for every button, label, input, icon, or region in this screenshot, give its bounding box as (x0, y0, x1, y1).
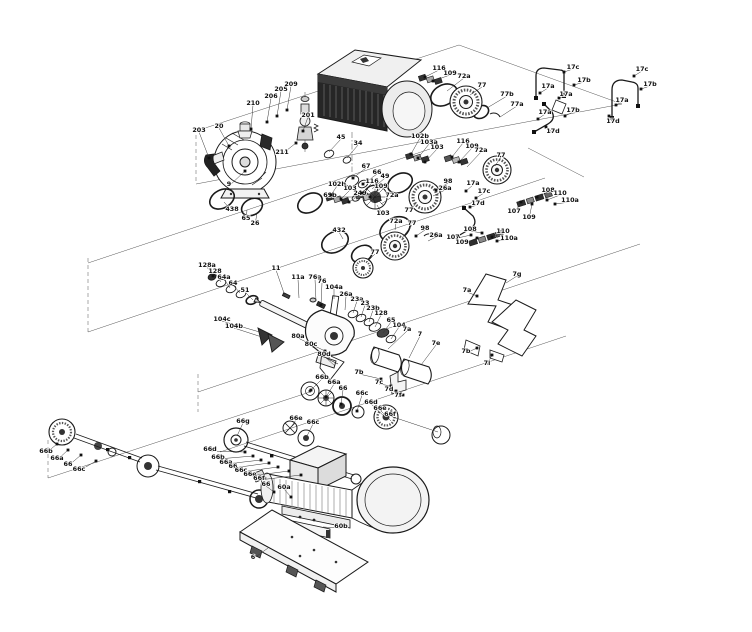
part-label-72a: 72a (457, 72, 470, 80)
part-label-108: 108 (463, 225, 477, 233)
screw-dot (352, 177, 355, 180)
part-label-109: 109 (443, 69, 457, 77)
screw-dot (340, 198, 343, 201)
part-label-45: 45 (337, 133, 346, 141)
screw-dot (573, 84, 576, 87)
part-label-66g: 66g (236, 417, 250, 425)
part-label-17a: 17a (466, 179, 479, 187)
part-label-49: 49 (381, 172, 390, 180)
screw-dot (250, 128, 253, 131)
screw-dot (563, 71, 566, 74)
screw-dot (212, 275, 215, 278)
part-label-7f: 7f (394, 391, 401, 399)
part-label-104b: 104b (225, 322, 243, 330)
screw-dot (330, 194, 333, 197)
screw-dot (310, 389, 313, 392)
part-label-17a: 17a (541, 82, 554, 90)
screw-dot (410, 153, 413, 156)
part-label-66: 66 (339, 384, 348, 392)
part-label-66d: 66d (203, 445, 217, 453)
part-label-17c: 17c (567, 63, 580, 71)
screw-dot (95, 460, 98, 463)
leader-line (411, 138, 420, 154)
part-label-26a: 26a (438, 184, 451, 192)
part-label-66: 66 (262, 480, 271, 488)
part-label-7c: 7c (375, 378, 383, 386)
part-label-17a: 17a (615, 96, 628, 104)
part-labels-layer: 2032021020620520920121194386526453467664… (39, 63, 657, 561)
part-label-77: 77 (478, 81, 487, 89)
leader-line (199, 132, 209, 158)
screw-dot (300, 474, 303, 477)
screw-dot (458, 161, 461, 164)
screw-dot (424, 161, 427, 164)
part-label-66c: 66c (356, 389, 369, 397)
part-label-103: 103 (376, 209, 389, 217)
screw-dot (252, 455, 255, 458)
leader-line (315, 279, 316, 301)
part-label-20: 20 (215, 122, 224, 130)
part-label-77b: 77b (500, 90, 514, 98)
screw-dot (320, 304, 323, 307)
part-label-72a: 72a (474, 146, 487, 154)
part-label-17a: 17a (559, 90, 572, 98)
leader-line (345, 296, 346, 310)
part-label-17b: 17b (643, 80, 657, 88)
part-label-51: 51 (241, 286, 250, 294)
screw-dot (432, 80, 435, 83)
part-label-80a: 80a (291, 332, 304, 340)
screw-dot (348, 201, 351, 204)
part-label-17b: 17b (577, 76, 591, 84)
part-label-17c: 17c (478, 187, 491, 195)
part-label-60b: 60b (334, 522, 348, 530)
exploded-diagram-svg: 2032021020620520920121194386526453467664… (0, 0, 752, 632)
part-label-26: 26 (251, 219, 260, 227)
part-label-72a: 72a (389, 217, 402, 225)
screw-dot (491, 354, 494, 357)
screw-dot (325, 396, 328, 399)
screw-dot (228, 145, 231, 148)
part-label-7d: 7d (384, 385, 393, 393)
part-label-7a: 7a (403, 325, 412, 333)
leader-line (267, 98, 271, 122)
leader-line (276, 270, 285, 296)
screw-dot (208, 157, 211, 160)
screw-dot (362, 183, 365, 186)
leader-line (388, 331, 407, 349)
part-label-77: 77 (371, 248, 380, 256)
part-label-107: 107 (507, 207, 520, 215)
screw-dot (417, 157, 420, 160)
part-label-17d: 17d (546, 127, 560, 135)
sleeves (369, 347, 431, 394)
part-label-206: 206 (264, 92, 278, 100)
screw-dot (539, 92, 542, 95)
leader-line (452, 143, 463, 157)
screw-dot (554, 203, 557, 206)
part-label-110a: 110a (500, 234, 518, 242)
part-label-211: 211 (275, 148, 288, 156)
screw-dot (481, 232, 484, 235)
part-label-67: 67 (362, 162, 371, 170)
screw-dot (356, 410, 359, 413)
part-label-80c: 80c (305, 340, 318, 348)
part-label-7e: 7e (432, 339, 441, 347)
screw-dot (536, 196, 539, 199)
part-label-11a: 11a (291, 273, 304, 281)
part-label-203: 203 (192, 126, 205, 134)
screw-dot (295, 142, 298, 145)
screw-dot (476, 347, 479, 350)
screw-dot (277, 466, 280, 469)
part-label-7: 7 (418, 330, 422, 338)
part-label-77: 77 (408, 219, 417, 227)
leader-line (251, 105, 253, 129)
part-label-66a: 66a (50, 454, 63, 462)
leader-line (357, 395, 362, 411)
part-label-432: 432 (332, 226, 345, 234)
part-label-66f: 66f (384, 410, 396, 418)
screw-dot (520, 201, 523, 204)
leader-line (390, 416, 438, 432)
part-label-210: 210 (246, 99, 260, 107)
screw-dot (260, 459, 263, 462)
screw-dot (361, 192, 364, 195)
screw-dot (244, 170, 247, 173)
screw-dot (476, 237, 479, 240)
part-label-77a: 77a (510, 100, 523, 108)
screw-dot (266, 121, 269, 124)
part-label-64: 64 (229, 279, 238, 287)
part-label-77: 77 (497, 151, 506, 159)
screw-dot (369, 196, 372, 199)
screw-dot (340, 403, 343, 406)
part-label-6: 6 (251, 553, 256, 561)
part-label-66e: 66e (289, 414, 303, 422)
screw-dot (470, 234, 473, 237)
screw-dot (496, 240, 499, 243)
screw-dot (273, 491, 276, 494)
part-label-66c: 66c (307, 418, 320, 426)
part-label-66: 66 (64, 460, 73, 468)
part-label-201: 201 (301, 111, 314, 119)
leader-line (298, 279, 299, 298)
part-label-60a: 60a (277, 483, 290, 491)
part-label-109: 109 (522, 213, 536, 221)
screw-dot (67, 449, 70, 452)
leader-line (321, 283, 322, 305)
part-label-209: 209 (284, 80, 298, 88)
drive-unit (318, 50, 432, 137)
part-label-17d: 17d (606, 117, 620, 125)
part-label-17d: 17d (471, 199, 485, 207)
leader-line (421, 345, 436, 365)
screw-dot (546, 199, 549, 202)
part-label-11: 11 (272, 264, 281, 272)
screw-dot (451, 156, 454, 159)
part-label-109: 109 (455, 238, 469, 246)
part-label-17a: 17a (538, 108, 551, 116)
screw-dot (288, 470, 291, 473)
screw-dot (244, 451, 247, 454)
screw-dot (402, 394, 405, 397)
part-label-7b: 7b (354, 368, 363, 376)
part-label-77: 77 (405, 206, 414, 214)
pump-head (212, 122, 276, 198)
part-label-9: 9 (227, 180, 232, 188)
screw-dot (435, 189, 438, 192)
screw-dot (465, 190, 468, 193)
screw-dot (424, 76, 427, 79)
part-label-7i: 7i (484, 359, 491, 367)
screw-dot (302, 130, 305, 133)
part-label-7a: 7a (463, 286, 472, 294)
part-label-110a: 110a (561, 196, 579, 204)
screw-dot (615, 104, 618, 107)
part-label-7b: 7b (461, 347, 470, 355)
part-label-17b: 17b (566, 106, 580, 114)
part-label-7g: 7g (512, 270, 521, 278)
part-label-66c: 66c (73, 465, 86, 473)
part-label-109: 109 (374, 182, 388, 190)
screw-dot (290, 496, 293, 499)
screw-dot (268, 462, 271, 465)
leader-line (409, 336, 420, 358)
part-label-17c: 17c (636, 65, 649, 73)
part-label-34: 34 (354, 139, 363, 147)
screw-dot (415, 235, 418, 238)
screw-dot (276, 115, 279, 118)
part-label-26a: 26a (429, 231, 442, 239)
screw-dot (56, 443, 59, 446)
leader-line (467, 152, 481, 167)
part-label-103: 103 (430, 143, 443, 151)
screw-dot (80, 454, 83, 457)
screw-dot (531, 203, 534, 206)
screw-dot (564, 115, 567, 118)
screw-dot (491, 236, 494, 239)
diagram-canvas: 2032021020620520920121194386526453467664… (0, 0, 752, 632)
part-label-72a: 72a (385, 191, 398, 199)
part-label-65: 65 (242, 214, 251, 222)
part-label-80d: 80d (317, 350, 331, 358)
screw-dot (476, 295, 479, 298)
screw-dot (640, 88, 643, 91)
part-label-438: 438 (225, 205, 239, 213)
screw-dot (537, 118, 540, 121)
screw-dot (633, 75, 636, 78)
screw-dot (286, 109, 289, 112)
